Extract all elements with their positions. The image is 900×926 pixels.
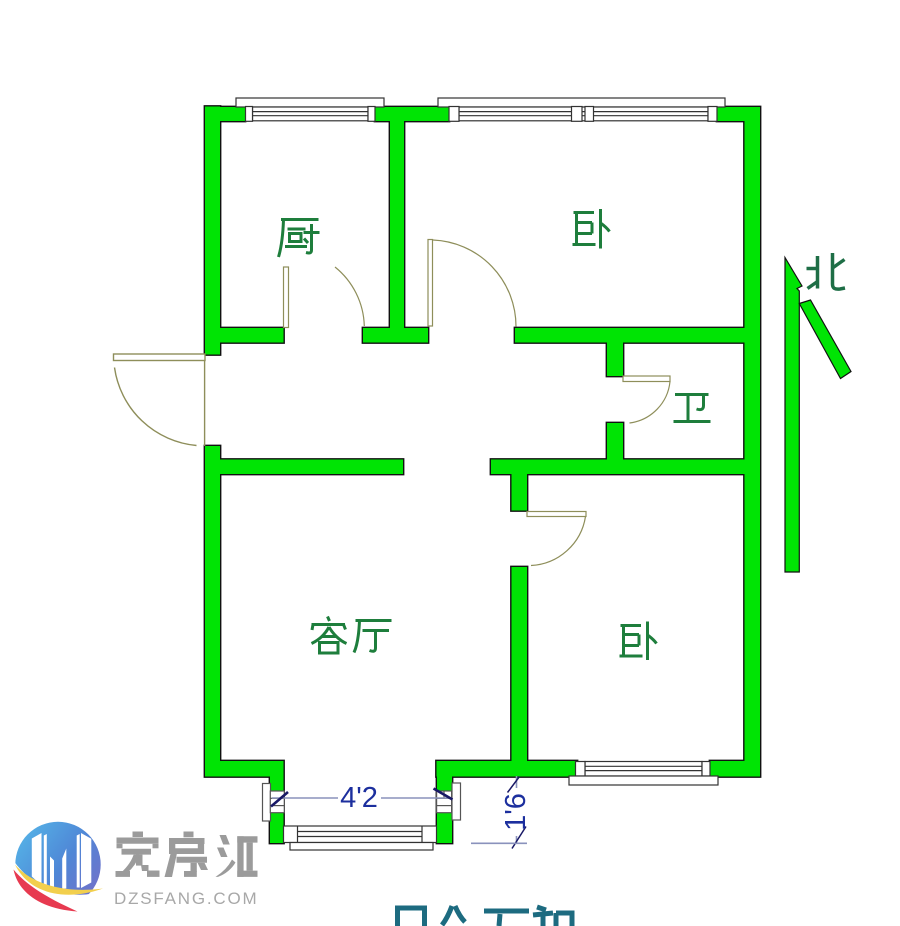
svg-text:4'2: 4'2 — [340, 782, 378, 814]
svg-text:1'6: 1'6 — [500, 793, 532, 831]
svg-text:DZSFANG.COM: DZSFANG.COM — [114, 889, 258, 908]
